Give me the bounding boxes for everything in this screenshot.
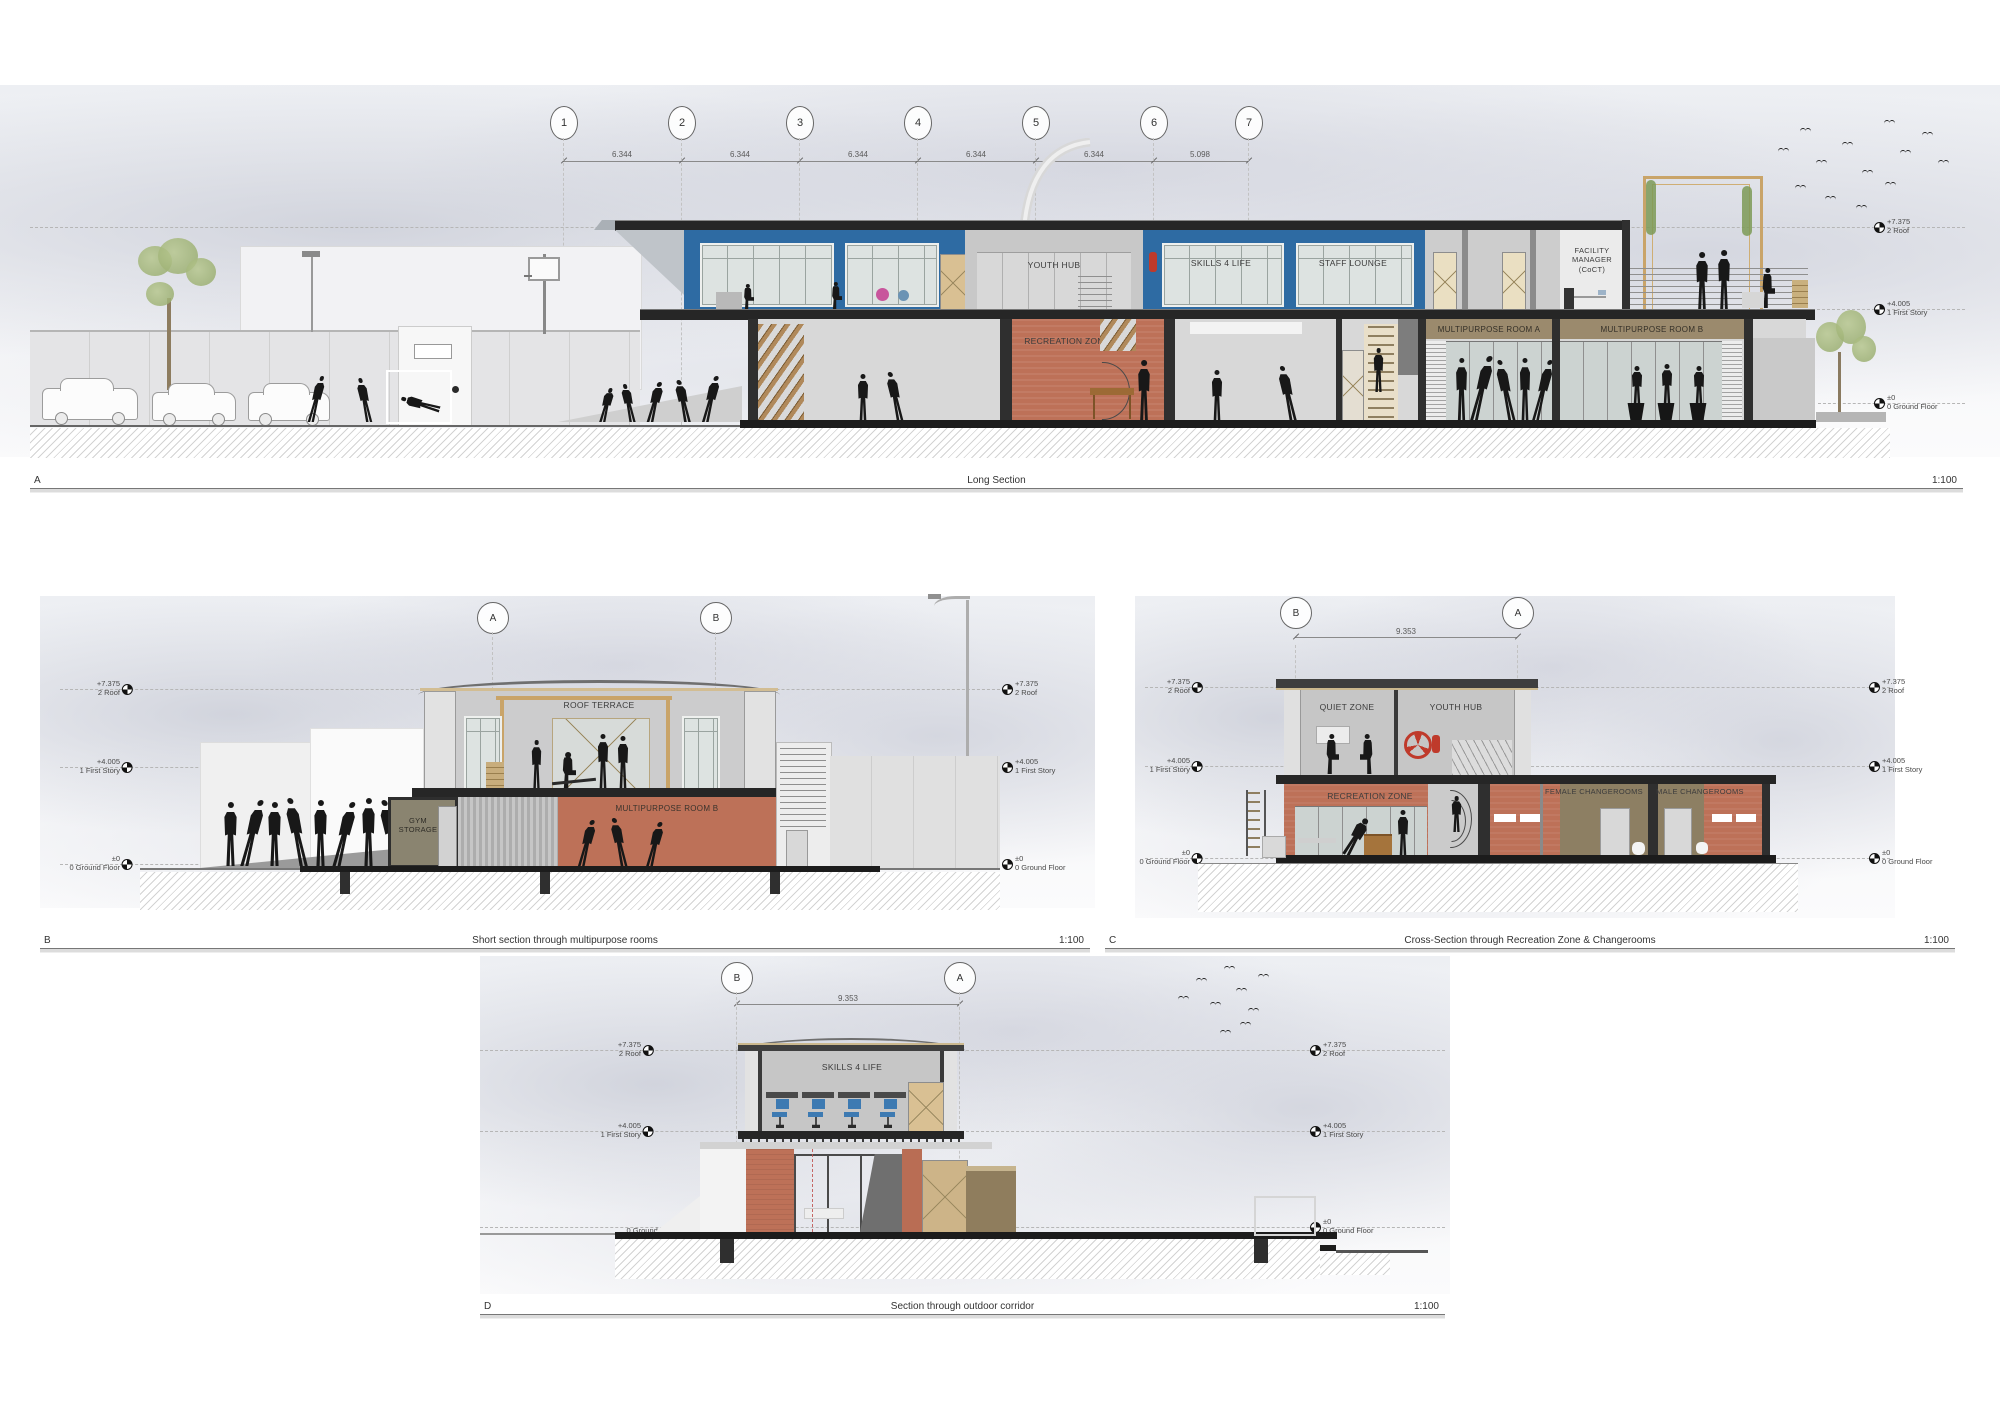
column bbox=[1462, 230, 1468, 310]
grid-label: 2 bbox=[679, 117, 685, 129]
section-scale: 1:100 bbox=[1414, 1301, 1439, 1312]
foundation bbox=[770, 872, 780, 894]
door bbox=[1433, 252, 1457, 312]
slab-lip bbox=[700, 1142, 992, 1149]
vine-greenery bbox=[1646, 180, 1656, 235]
ground-line bbox=[880, 868, 1000, 870]
pink-ball-chair bbox=[876, 288, 889, 301]
lamp-head bbox=[302, 251, 320, 257]
dimension-value: 6.344 bbox=[602, 150, 642, 159]
column bbox=[1530, 230, 1536, 310]
wall-joint bbox=[1540, 784, 1543, 857]
pergola-beam bbox=[496, 696, 672, 700]
level-icon bbox=[122, 859, 133, 870]
level-icon bbox=[1192, 682, 1203, 693]
level-name: 2 Roof bbox=[1882, 687, 1905, 696]
person-silhouette bbox=[1372, 348, 1385, 392]
bird-icon bbox=[1178, 996, 1189, 1002]
wooden-double-door bbox=[922, 1160, 968, 1234]
crate-stack bbox=[486, 762, 504, 790]
level-icon bbox=[643, 1126, 654, 1137]
person-silhouette bbox=[222, 802, 239, 866]
door bbox=[786, 830, 808, 870]
door bbox=[1600, 808, 1630, 859]
room-label: MALE CHANGEROOMS bbox=[1650, 787, 1750, 796]
room-label: YOUTH HUB bbox=[1398, 702, 1514, 713]
room-label: ROOF TERRACE bbox=[424, 700, 774, 711]
bird-icon bbox=[1825, 196, 1836, 202]
level-marker: +4.0051 First Story bbox=[1310, 1122, 1363, 1140]
side-pillar bbox=[745, 1051, 758, 1131]
section-title-row: C Cross-Section through Recreation Zone … bbox=[1105, 932, 1955, 949]
level-name: 0 Ground Floor bbox=[1015, 864, 1065, 873]
kiosk-sign bbox=[414, 344, 452, 359]
step-block bbox=[1262, 836, 1286, 858]
chair bbox=[808, 1112, 823, 1117]
level-marker: +4.0051 First Story bbox=[1150, 757, 1203, 775]
level-name: 2 Roof bbox=[618, 1050, 641, 1059]
level-icon bbox=[1002, 762, 1013, 773]
laptop bbox=[1598, 290, 1606, 295]
grid-bubble: 1 bbox=[550, 106, 578, 140]
planter bbox=[1816, 412, 1886, 422]
level-icon bbox=[1192, 853, 1203, 864]
foundation bbox=[720, 1239, 734, 1263]
goal-frame bbox=[1254, 1196, 1316, 1236]
level-marker: +7.3752 Roof bbox=[1002, 680, 1038, 698]
column bbox=[1000, 319, 1012, 420]
level-marker: ±00 Ground Floor bbox=[70, 855, 133, 873]
bird-icon bbox=[1816, 160, 1827, 166]
sofa bbox=[716, 292, 742, 309]
column bbox=[1336, 319, 1342, 420]
ground-hatch bbox=[1198, 863, 1798, 912]
ground-line bbox=[480, 1233, 615, 1235]
column bbox=[1418, 319, 1426, 420]
tree-trunk bbox=[167, 298, 171, 390]
bird-icon bbox=[1795, 185, 1806, 191]
section-title-row: A Long Section 1:100 bbox=[30, 472, 1963, 489]
grid-label: B bbox=[713, 613, 720, 624]
level-name: 1 First Story bbox=[1323, 1131, 1363, 1140]
roof-slab bbox=[1276, 679, 1538, 688]
section-title-row: B Short section through multipurpose roo… bbox=[40, 932, 1090, 949]
room-label: MULTIPURPOSE ROOM A bbox=[1426, 325, 1552, 335]
grid-label: A bbox=[490, 613, 497, 624]
grid-bubble: 7 bbox=[1235, 106, 1263, 140]
vine-greenery bbox=[1742, 186, 1752, 236]
person-silhouette bbox=[1454, 358, 1469, 420]
table bbox=[1090, 388, 1134, 395]
level-icon bbox=[1002, 859, 1013, 870]
bird-icon bbox=[1210, 1002, 1221, 1008]
table-leg bbox=[1093, 395, 1095, 419]
section-cut-line bbox=[812, 1149, 813, 1232]
grid-bubble: 3 bbox=[786, 106, 814, 140]
side-pillar bbox=[1284, 690, 1301, 775]
window bbox=[682, 716, 720, 792]
desk-partition bbox=[802, 1092, 834, 1098]
planter-wall bbox=[1753, 338, 1815, 420]
person-silhouette bbox=[1630, 366, 1644, 406]
level-icon bbox=[1002, 684, 1013, 695]
room-label: FACILITY MANAGER (CoCT) bbox=[1562, 246, 1622, 274]
room-label: SKILLS 4 LIFE bbox=[1160, 258, 1282, 269]
ground-line bbox=[140, 868, 300, 870]
door bbox=[1502, 252, 1526, 312]
bird-icon bbox=[1862, 170, 1873, 176]
level-marker: ±00 Ground Floor bbox=[1002, 855, 1065, 873]
column bbox=[1552, 319, 1560, 420]
bird-icon bbox=[1938, 160, 1949, 166]
ground-slab bbox=[615, 1232, 1337, 1239]
level-marker: +4.0051 First Story bbox=[1869, 757, 1922, 775]
counter bbox=[1574, 296, 1606, 298]
column bbox=[1744, 319, 1753, 428]
car bbox=[42, 388, 138, 420]
grid-bubble: 5 bbox=[1022, 106, 1050, 140]
level-icon bbox=[1869, 761, 1880, 772]
level-marker: +7.3752 Roof bbox=[1874, 218, 1910, 236]
level-name: 0 Ground Floor bbox=[1887, 403, 1937, 412]
window-slit bbox=[1494, 814, 1516, 822]
blue-ball-chair bbox=[898, 290, 909, 301]
level-name: 1 First Story bbox=[1150, 766, 1190, 775]
level-marker: +4.0051 First Story bbox=[80, 758, 133, 776]
level-name: 0 Ground Floor bbox=[70, 864, 120, 873]
level-marker: +4.0051 First Story bbox=[1002, 758, 1055, 776]
room-label: QUIET ZONE bbox=[1300, 702, 1394, 713]
grid-label: 6 bbox=[1151, 117, 1157, 129]
bird-icon bbox=[1258, 974, 1269, 980]
level-marker: +7.3752 Roof bbox=[97, 680, 133, 698]
dimension-line bbox=[736, 1004, 959, 1005]
grid-bubble: B bbox=[700, 602, 732, 634]
level-name: 2 Roof bbox=[1887, 227, 1910, 236]
room-label: MULTIPURPOSE ROOM B bbox=[1560, 325, 1744, 335]
grid-label: 5 bbox=[1033, 117, 1039, 129]
section-scale: 1:100 bbox=[1932, 475, 1957, 486]
clerestory-strip bbox=[1190, 322, 1302, 334]
bird-icon bbox=[1885, 182, 1896, 188]
person-silhouette bbox=[1210, 370, 1224, 421]
ground-slab bbox=[740, 420, 1816, 428]
person-silhouette bbox=[1660, 364, 1674, 406]
level-marker: +4.0051 First Story bbox=[1874, 300, 1927, 318]
lamp-pole bbox=[966, 600, 969, 756]
ball bbox=[452, 386, 459, 393]
person-silhouette bbox=[1694, 252, 1710, 310]
window bbox=[845, 243, 939, 307]
grid-label: 7 bbox=[1246, 117, 1252, 129]
car bbox=[152, 392, 236, 421]
person-silhouette bbox=[742, 284, 754, 310]
section-title: Cross-Section through Recreation Zone & … bbox=[1105, 935, 1955, 946]
bird-icon bbox=[1778, 148, 1789, 154]
person-silhouette bbox=[856, 374, 870, 421]
column bbox=[1478, 784, 1490, 857]
bird-icon bbox=[1248, 1008, 1259, 1014]
corrugated-wall bbox=[458, 797, 558, 868]
chair bbox=[844, 1112, 859, 1117]
level-name: 1 First Story bbox=[1887, 309, 1927, 318]
dimension-line bbox=[563, 161, 1248, 162]
grid-bubble: 6 bbox=[1140, 106, 1168, 140]
grid-bubble: A bbox=[1502, 597, 1534, 629]
person-silhouette bbox=[616, 736, 630, 788]
level-icon bbox=[1869, 682, 1880, 693]
door bbox=[908, 1082, 944, 1133]
level-marker: ±00 Ground Floor bbox=[1874, 394, 1937, 412]
section-scale: 1:100 bbox=[1924, 935, 1949, 946]
tree-foliage bbox=[146, 282, 174, 306]
chair bbox=[880, 1112, 895, 1117]
bird-icon bbox=[1900, 150, 1911, 156]
person-silhouette bbox=[530, 740, 543, 788]
desk-partition bbox=[838, 1092, 870, 1098]
stair-railing bbox=[1078, 276, 1112, 310]
window bbox=[1296, 243, 1414, 307]
end-wall bbox=[1762, 784, 1770, 857]
grid-label: B bbox=[1293, 608, 1300, 619]
wall-block bbox=[1398, 319, 1418, 375]
staircase bbox=[756, 324, 804, 420]
desk-partition bbox=[874, 1092, 906, 1098]
bird-icon bbox=[1842, 142, 1853, 148]
grid-bubble: A bbox=[477, 602, 509, 634]
grid-label: 4 bbox=[915, 117, 921, 129]
dimension-value: 9.353 bbox=[828, 994, 868, 1003]
end-column bbox=[1622, 220, 1630, 319]
level-name: 1 First Story bbox=[1015, 767, 1055, 776]
terracotta-pier bbox=[746, 1149, 794, 1232]
toilet bbox=[1632, 842, 1645, 855]
table-leg bbox=[1129, 395, 1131, 419]
door bbox=[1342, 350, 1364, 422]
floor-slab bbox=[738, 1131, 964, 1139]
dimension-value: 6.344 bbox=[720, 150, 760, 159]
monitor bbox=[812, 1099, 825, 1109]
door bbox=[940, 254, 966, 312]
fire-extinguisher-icon bbox=[1432, 735, 1440, 753]
person-silhouette bbox=[266, 802, 283, 866]
level-icon bbox=[643, 1045, 654, 1056]
level-marker: +7.3752 Roof bbox=[618, 1041, 654, 1059]
person-silhouette bbox=[360, 798, 377, 866]
foundation bbox=[340, 872, 350, 894]
grid-label: B bbox=[734, 973, 741, 984]
louver-panel bbox=[1722, 341, 1742, 420]
column bbox=[748, 319, 758, 420]
basketball-rim bbox=[524, 275, 532, 277]
room-label: YOUTH HUB bbox=[965, 260, 1143, 271]
section-title: Section through outdoor corridor bbox=[480, 1301, 1445, 1312]
level-name: 2 Roof bbox=[1015, 689, 1038, 698]
bird-icon bbox=[1800, 128, 1811, 134]
desk bbox=[1564, 288, 1574, 310]
grid-label: 1 bbox=[561, 117, 567, 129]
person-silhouette bbox=[1396, 810, 1410, 857]
level-icon bbox=[1310, 1045, 1321, 1056]
foundation bbox=[540, 872, 550, 894]
grid-bubble: B bbox=[1280, 597, 1312, 629]
column bbox=[1164, 319, 1175, 420]
door bbox=[1664, 808, 1692, 859]
person-silhouette bbox=[1716, 250, 1732, 310]
bird-icon bbox=[1220, 1030, 1231, 1036]
desk-partition bbox=[766, 1092, 798, 1098]
tree-foliage bbox=[186, 258, 216, 286]
level-marker: +4.0051 First Story bbox=[601, 1122, 654, 1140]
level-name: 0 Ground Floor bbox=[1140, 858, 1190, 867]
level-name: 2 Roof bbox=[97, 689, 120, 698]
ground-slab bbox=[1276, 855, 1776, 863]
basketball-backboard bbox=[528, 257, 560, 281]
level-marker: ±00 Ground Floor bbox=[1869, 849, 1932, 867]
architectural-section-sheet: 1 2 3 4 5 6 7 6.344 6.344 6.344 6.344 6.… bbox=[0, 0, 2000, 1413]
person-silhouette bbox=[1360, 734, 1375, 774]
room-label: STAFF LOUNGE bbox=[1292, 258, 1414, 269]
level-name: 0 Ground Floor bbox=[1882, 858, 1932, 867]
door bbox=[438, 806, 457, 868]
person-silhouette bbox=[1692, 366, 1706, 406]
ground-hatch bbox=[30, 428, 1890, 458]
floor-slab bbox=[1276, 775, 1776, 784]
monitor bbox=[884, 1099, 897, 1109]
ground-line bbox=[30, 425, 740, 427]
terrace-table bbox=[1742, 292, 1764, 308]
grid-label: A bbox=[1515, 608, 1522, 619]
toilet bbox=[1696, 842, 1708, 854]
level-name: 2 Roof bbox=[1323, 1050, 1346, 1059]
level-name: 1 First Story bbox=[80, 767, 120, 776]
table bbox=[1298, 838, 1336, 843]
level-name: 1 First Story bbox=[1882, 766, 1922, 775]
grid-bubble: 2 bbox=[668, 106, 696, 140]
person-silhouette bbox=[1136, 360, 1152, 420]
level-icon bbox=[1869, 853, 1880, 864]
person-silhouette bbox=[596, 734, 610, 788]
staircase bbox=[1100, 319, 1136, 351]
grid-bubble: 4 bbox=[904, 106, 932, 140]
stair-lines bbox=[780, 748, 826, 828]
level-icon bbox=[122, 684, 133, 695]
level-name: 2 Roof bbox=[1167, 687, 1190, 696]
level-marker: +7.3752 Roof bbox=[1869, 678, 1905, 696]
wall-fan-icon bbox=[1404, 731, 1432, 759]
louver-panel bbox=[1426, 341, 1446, 420]
room-label: RECREATION ZONE bbox=[1022, 336, 1112, 347]
level-icon bbox=[1192, 761, 1203, 772]
tree-foliage bbox=[1852, 336, 1876, 362]
section-title: Long Section bbox=[30, 475, 1963, 486]
level-icon bbox=[1874, 304, 1885, 315]
chair bbox=[772, 1112, 787, 1117]
window bbox=[1162, 243, 1284, 307]
terracotta-pier bbox=[902, 1149, 922, 1232]
side-pillar bbox=[1514, 690, 1531, 775]
monitor bbox=[776, 1099, 789, 1109]
foundation bbox=[1254, 1239, 1268, 1263]
corridor-block bbox=[966, 1166, 1016, 1237]
dimension-value: 9.353 bbox=[1386, 627, 1426, 636]
window-slit bbox=[1520, 814, 1540, 822]
wheel bbox=[112, 412, 125, 425]
side-pillar bbox=[944, 1051, 957, 1131]
bird-icon bbox=[1224, 966, 1235, 972]
level-icon bbox=[1874, 398, 1885, 409]
stair-panel bbox=[1452, 740, 1512, 775]
room-label: MULTIPURPOSE ROOM B bbox=[560, 804, 774, 814]
section-title: Short section through multipurpose rooms bbox=[40, 935, 1090, 946]
bird-icon bbox=[1240, 1022, 1251, 1028]
grid-bubble: A bbox=[944, 962, 976, 994]
window-slit bbox=[1712, 814, 1732, 822]
white-wall bbox=[700, 1149, 746, 1232]
bird-icon bbox=[1856, 205, 1867, 211]
bird-icon bbox=[1922, 132, 1933, 138]
fire-extinguisher-icon bbox=[1149, 252, 1157, 272]
level-marker: ±00 Ground Floor bbox=[1140, 849, 1203, 867]
level-icon bbox=[122, 762, 133, 773]
ground-hatch bbox=[1320, 1253, 1390, 1275]
furniture-sketch bbox=[804, 1208, 844, 1219]
section-scale: 1:100 bbox=[1059, 935, 1084, 946]
dimension-value: 6.344 bbox=[956, 150, 996, 159]
level-marker: +7.3752 Roof bbox=[1167, 678, 1203, 696]
lamp-pole bbox=[311, 256, 313, 332]
grid-bubble: B bbox=[721, 962, 753, 994]
room-label: RECREATION ZONE bbox=[1310, 791, 1430, 802]
light-mast bbox=[1000, 138, 1095, 233]
pergola-post bbox=[666, 700, 670, 788]
grid-label: A bbox=[957, 973, 964, 984]
level-marker: +7.3752 Roof bbox=[1310, 1041, 1346, 1059]
section-title-row: D Section through outdoor corridor 1:100 bbox=[480, 1298, 1445, 1315]
ground-hatch bbox=[140, 872, 1000, 910]
bird-icon bbox=[1236, 988, 1247, 994]
grid-label: 3 bbox=[797, 117, 803, 129]
person-silhouette bbox=[1324, 734, 1339, 774]
lamp-head bbox=[928, 594, 941, 599]
level-icon bbox=[1874, 222, 1885, 233]
bird-icon bbox=[1884, 120, 1895, 126]
ladder-rungs bbox=[1248, 792, 1260, 854]
crate-stack bbox=[1792, 280, 1808, 308]
dimension-line bbox=[1295, 637, 1517, 638]
person-silhouette bbox=[312, 800, 329, 866]
dimension-value: 5.098 bbox=[1180, 150, 1220, 159]
room-label: SKILLS 4 LIFE bbox=[762, 1062, 942, 1073]
monitor bbox=[848, 1099, 861, 1109]
level-icon bbox=[1310, 1126, 1321, 1137]
window-slit bbox=[1736, 814, 1756, 822]
person-silhouette bbox=[1450, 796, 1463, 832]
room-label: FEMALE CHANGEROOMS bbox=[1544, 787, 1644, 796]
wheel bbox=[55, 412, 68, 425]
bird-icon bbox=[1196, 978, 1207, 984]
side-wall bbox=[830, 756, 1000, 868]
dimension-value: 6.344 bbox=[838, 150, 878, 159]
level-name: 1 First Story bbox=[601, 1131, 641, 1140]
person-silhouette bbox=[830, 282, 842, 310]
